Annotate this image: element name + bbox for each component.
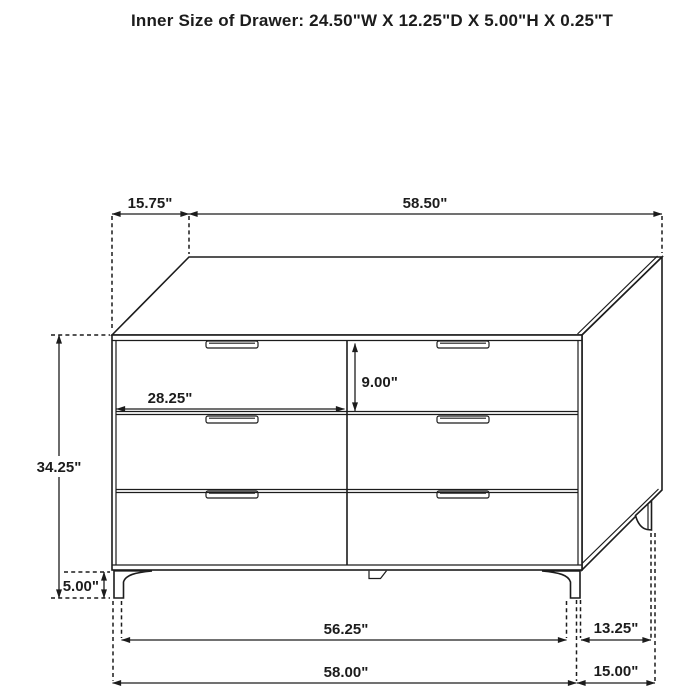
dim-between-legs-width: 56.25" xyxy=(122,621,567,640)
dresser-dimension-diagram: Inner Size of Drawer: 24.50"W X 12.25"D … xyxy=(0,0,700,700)
dim-overall-depth: 15.00" xyxy=(577,663,655,683)
dim-drawer-width-label: 28.25" xyxy=(148,390,193,407)
dim-side-leg-span: 13.25" xyxy=(581,620,651,640)
dim-drawer-height-label: 9.00" xyxy=(362,374,398,391)
dim-top-offset-label: 15.75" xyxy=(128,195,173,212)
dim-top-width-label: 58.50" xyxy=(403,195,448,212)
dim-leg-height: 5.00" xyxy=(63,572,104,598)
dim-side-leg-span-label: 13.25" xyxy=(594,620,639,637)
dresser-drawing xyxy=(112,256,662,598)
front-right-leg xyxy=(542,571,580,598)
dim-between-legs-width-label: 56.25" xyxy=(324,621,369,638)
front-left-leg xyxy=(114,571,152,598)
diagram-title: Inner Size of Drawer: 24.50"W X 12.25"D … xyxy=(131,11,613,30)
diagram-canvas: Inner Size of Drawer: 24.50"W X 12.25"D … xyxy=(0,0,700,700)
dim-overall-width-label: 58.00" xyxy=(324,664,369,681)
dim-cabinet-height: 34.25" xyxy=(31,335,87,598)
dim-cabinet-height-label: 34.25" xyxy=(37,459,82,476)
dim-overall-depth-label: 15.00" xyxy=(594,663,639,680)
center-foot xyxy=(369,571,387,579)
dim-top-width: 58.50" xyxy=(189,195,662,214)
dim-overall-width: 58.00" xyxy=(113,664,577,683)
top-face xyxy=(112,257,662,335)
dim-leg-height-label: 5.00" xyxy=(63,578,99,595)
dim-top-offset: 15.75" xyxy=(112,195,189,214)
